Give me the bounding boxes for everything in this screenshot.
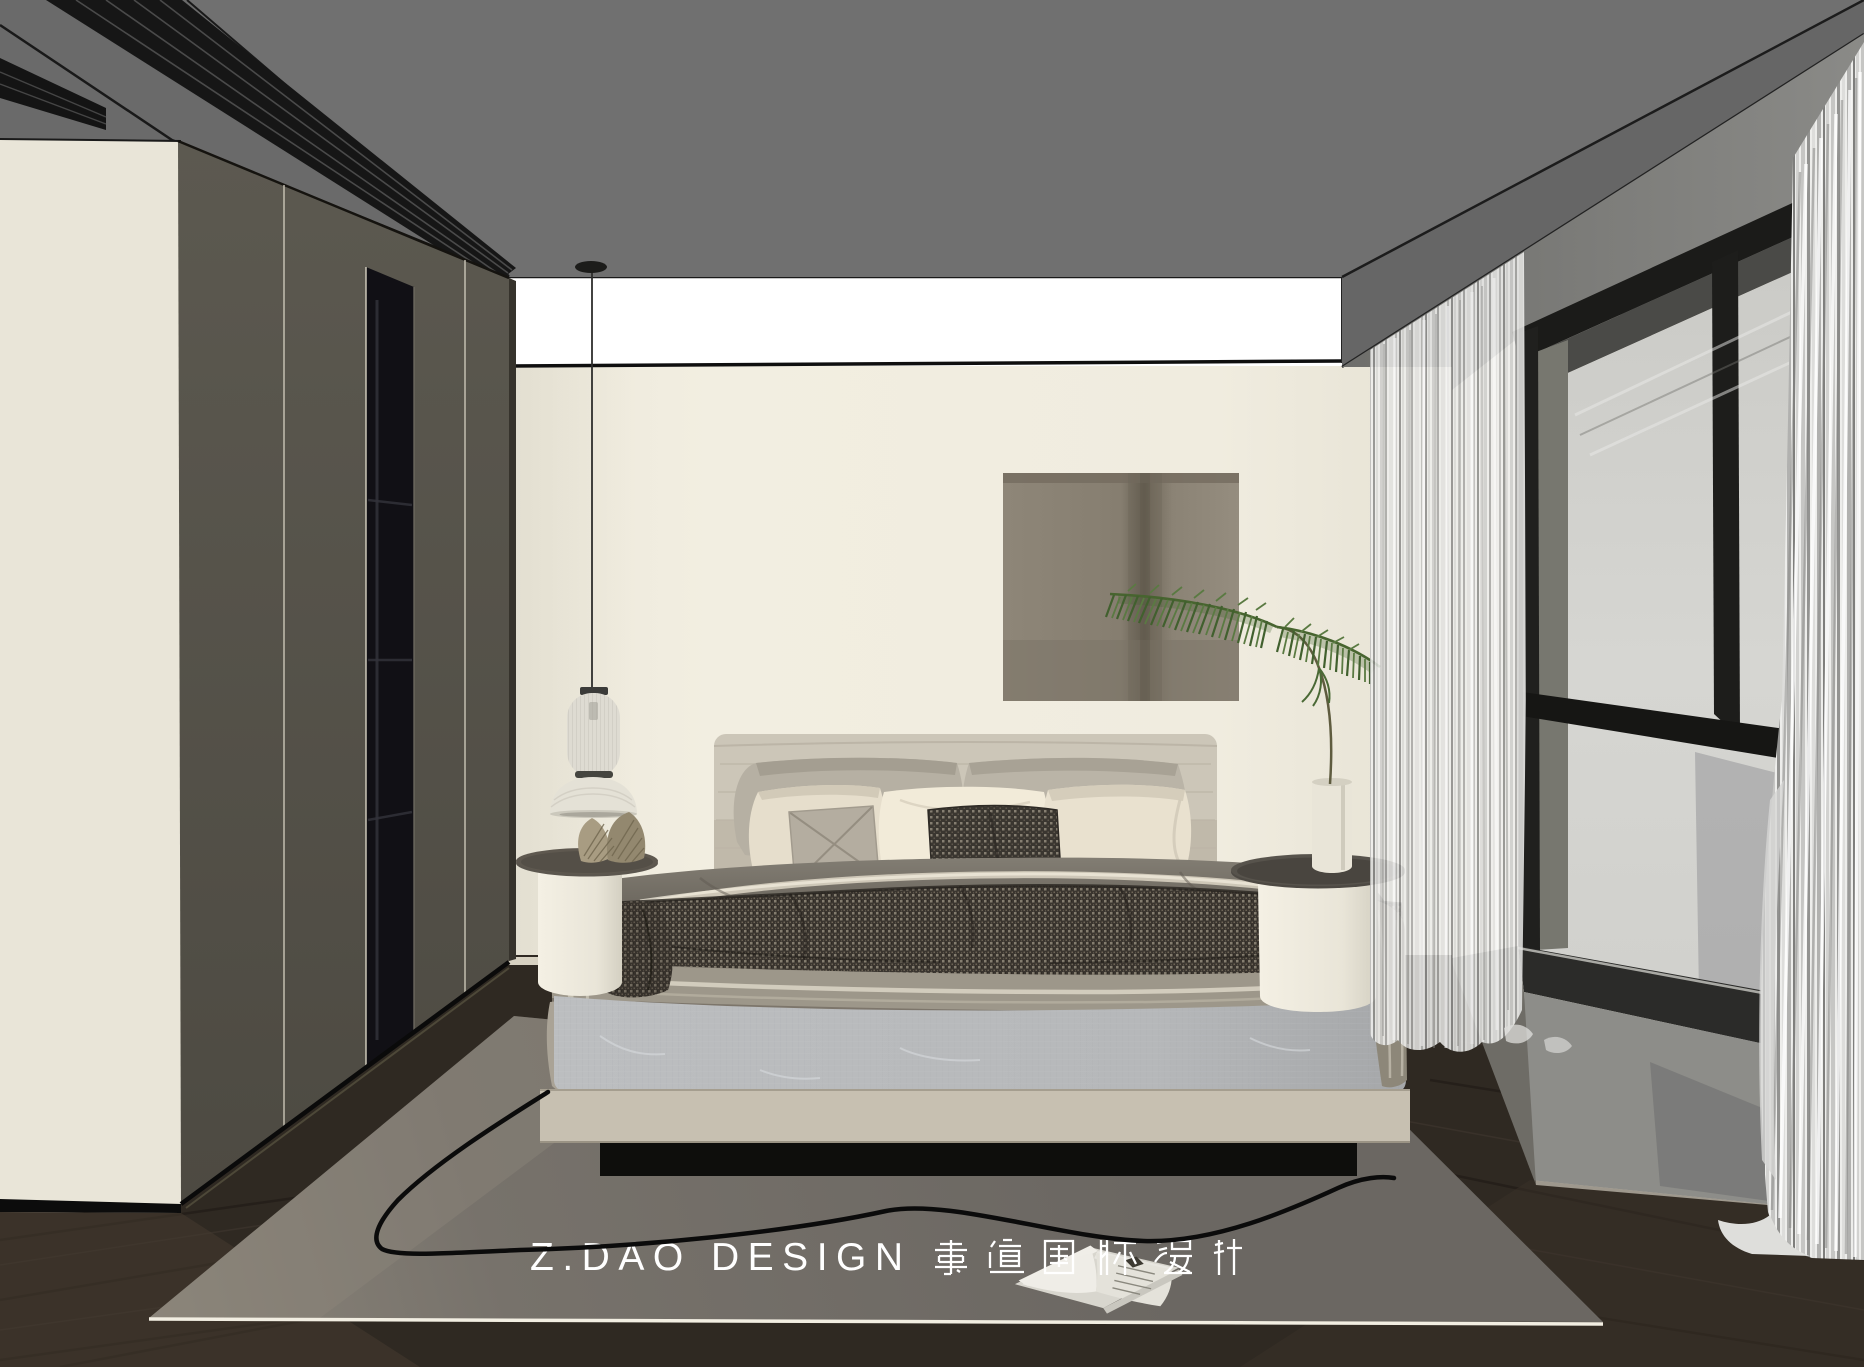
svg-text:Z.DAO DESIGN: Z.DAO DESIGN [530,1236,912,1279]
